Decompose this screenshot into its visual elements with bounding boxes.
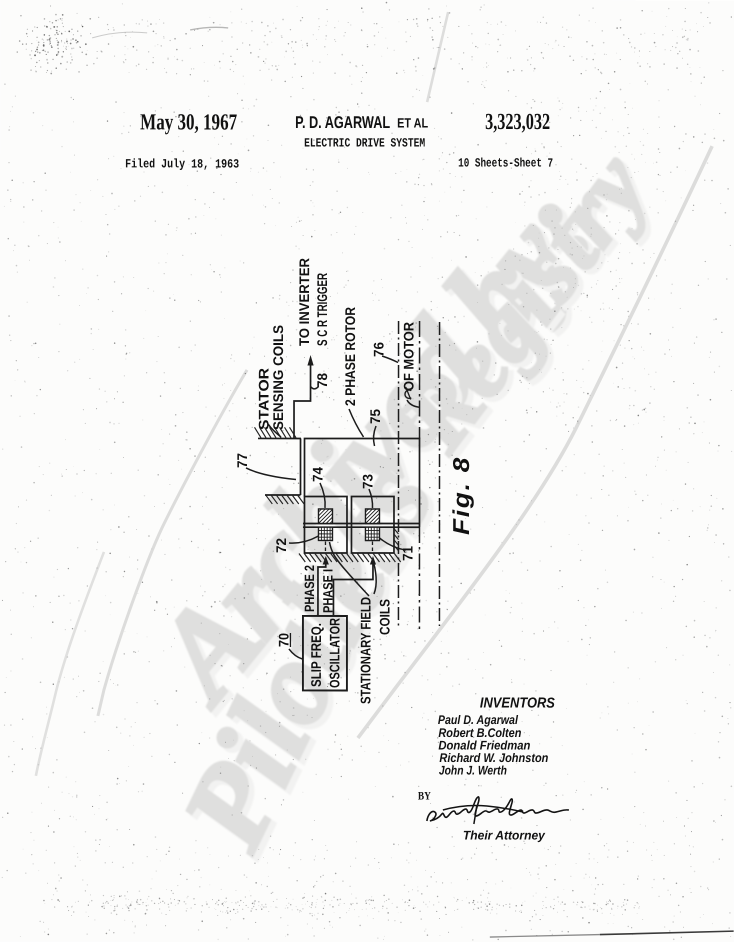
svg-text:S C R TRIGGER: S C R TRIGGER [314,273,330,346]
svg-text:74: 74 [309,467,325,482]
svg-text:ET AL: ET AL [397,116,428,131]
svg-text:75: 75 [367,409,383,424]
svg-text:TO INVERTER: TO INVERTER [296,258,312,346]
svg-text:PHASE I: PHASE I [320,569,335,613]
svg-text:78: 78 [314,373,330,388]
svg-text:3,323,032: 3,323,032 [485,109,550,134]
svg-text:P. D. AGARWAL: P. D. AGARWAL [295,113,390,132]
svg-text:OSCILLATOR: OSCILLATOR [326,618,342,688]
svg-text:SLIP FREQ.: SLIP FREQ. [308,623,324,687]
svg-text:70: 70 [275,633,291,647]
svg-text:77: 77 [234,453,250,468]
svg-text:72: 72 [273,538,289,553]
svg-text:OF MOTOR: OF MOTOR [401,322,417,391]
svg-text:Fig. 8: Fig. 8 [448,456,474,535]
svg-text:BY: BY [418,791,432,803]
svg-text:Paul D. Agarwal: Paul D. Agarwal [438,713,518,727]
svg-text:John J. Werth: John J. Werth [439,764,507,778]
svg-text:PHASE 2: PHASE 2 [302,565,317,612]
svg-text:73: 73 [359,474,375,489]
svg-text:Their Attorney: Their Attorney [463,829,546,843]
svg-text:2 PHASE ROTOR: 2 PHASE ROTOR [342,307,358,406]
svg-text:STATIONARY FIELD: STATIONARY FIELD [357,597,373,704]
svg-text:COILS: COILS [376,599,392,635]
svg-text:Filed July 18, 1963: Filed July 18, 1963 [125,157,239,171]
svg-text:ELECTRIC DRIVE SYSTEM: ELECTRIC DRIVE SYSTEM [304,136,425,150]
svg-text:76: 76 [371,342,387,357]
svg-text:71: 71 [399,546,415,561]
svg-text:INVENTORS: INVENTORS [480,696,555,712]
svg-text:May 30, 1967: May 30, 1967 [140,109,237,134]
svg-text:10 Sheets-Sheet 7: 10 Sheets-Sheet 7 [458,157,553,171]
svg-text:SENSING COILS: SENSING COILS [270,325,286,430]
